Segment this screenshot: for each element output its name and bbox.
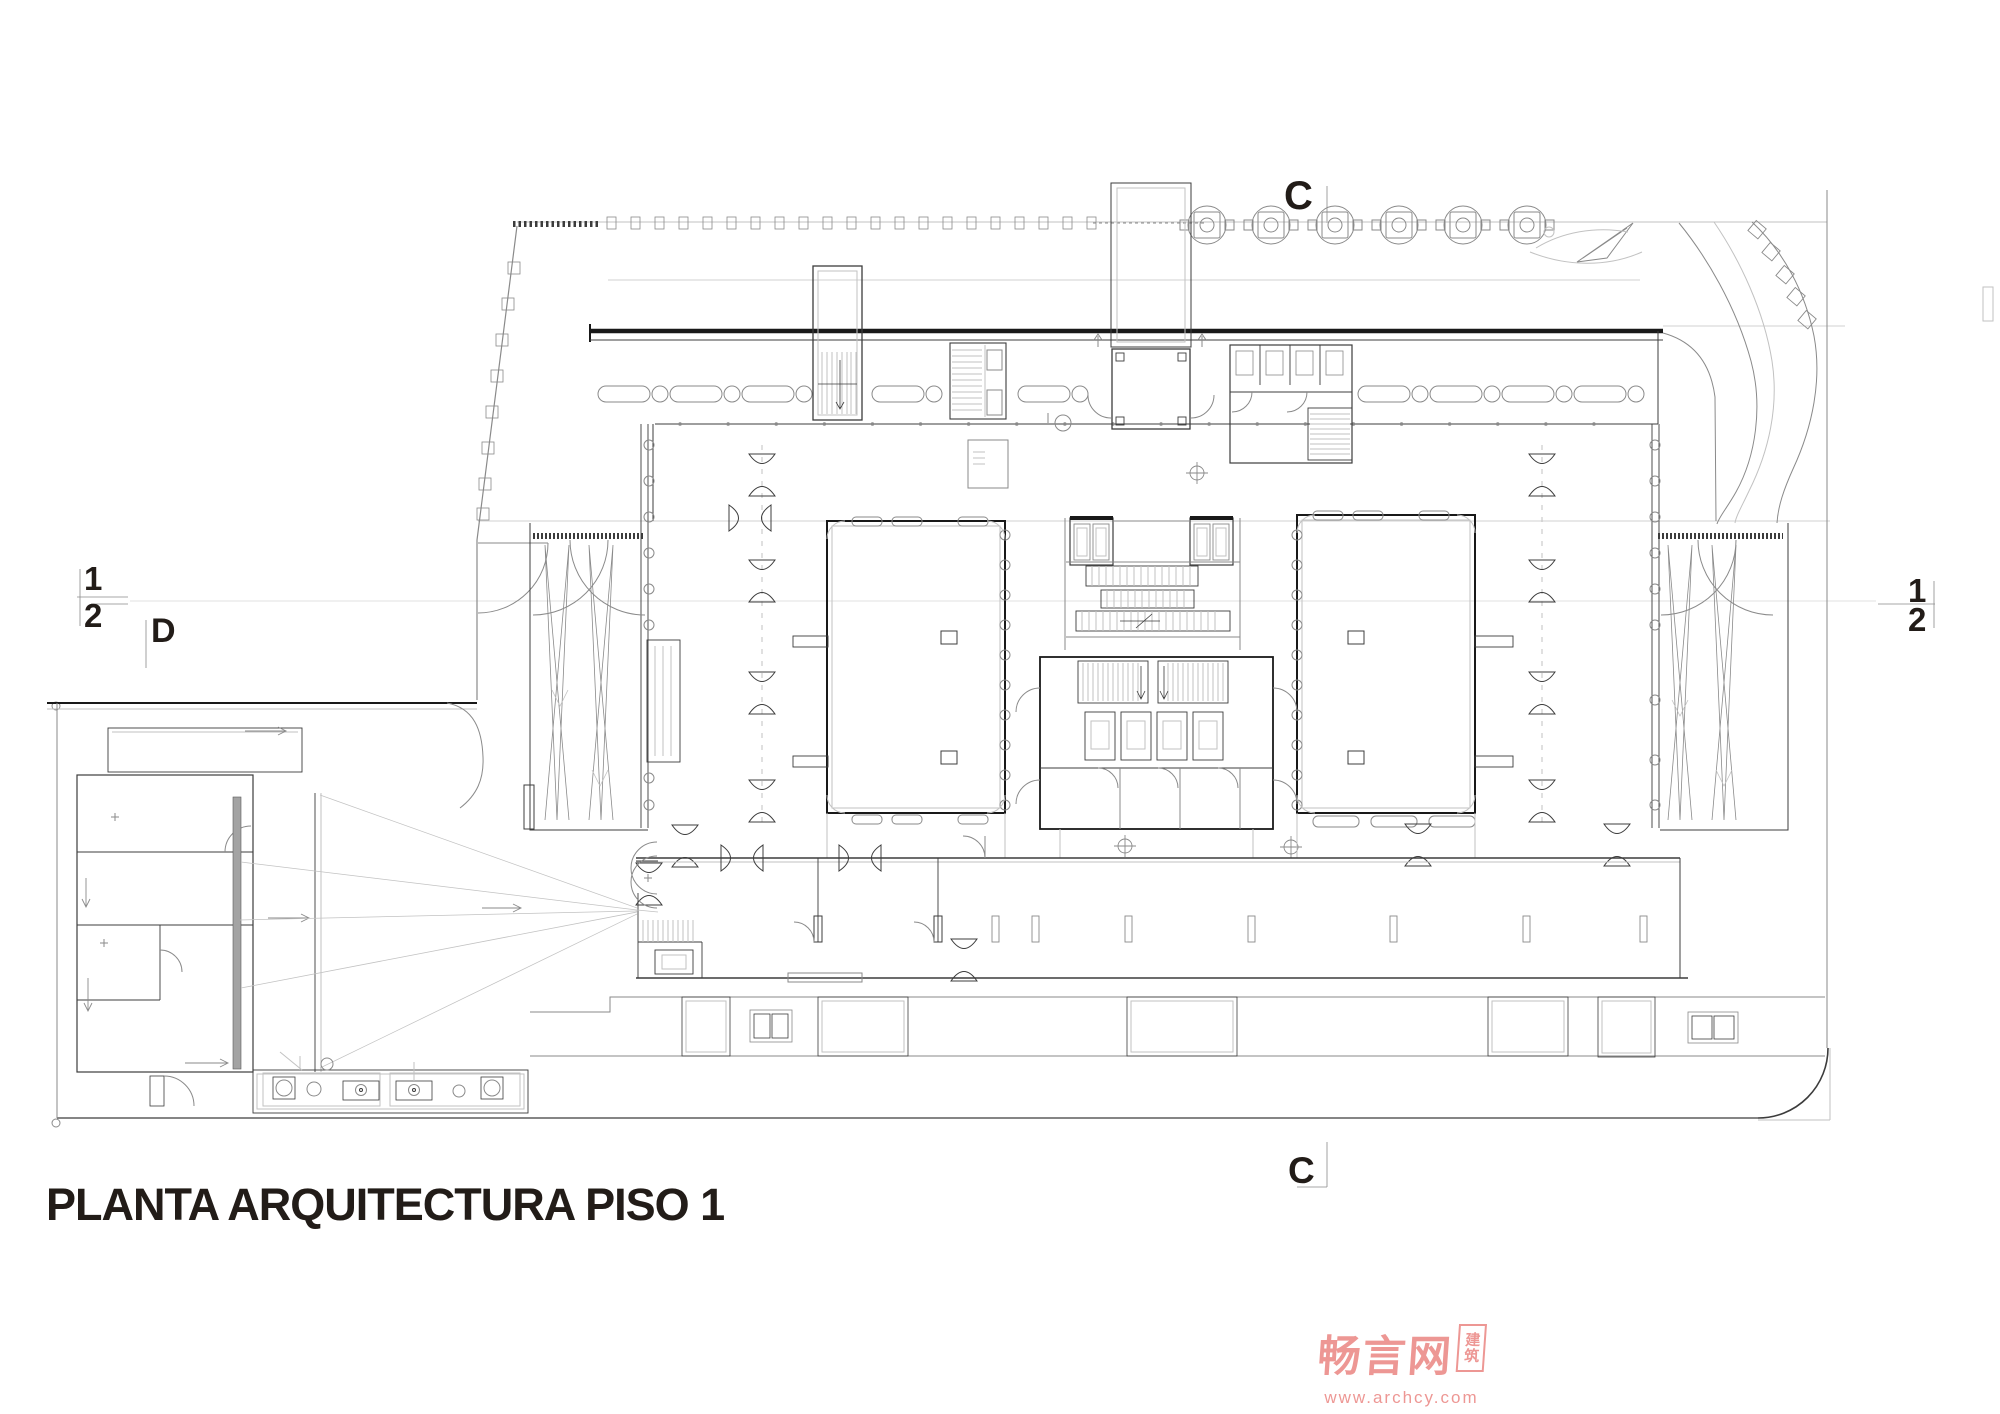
mid-band bbox=[672, 813, 1630, 867]
equipment-row bbox=[253, 1052, 528, 1113]
curtain-bay-right bbox=[1658, 523, 1788, 830]
section-marker-c-top: C bbox=[1284, 176, 1313, 216]
paved-strip bbox=[530, 997, 1825, 1057]
landscape-road bbox=[1530, 221, 1817, 524]
hall-left bbox=[793, 517, 1010, 824]
fence-mullions bbox=[607, 217, 1096, 229]
trees-row bbox=[1180, 206, 1554, 244]
section-marker-2-right: 2 bbox=[1908, 603, 1926, 636]
watermark: 畅言网 建筑 www.archcy.com bbox=[1318, 1322, 1485, 1408]
hall-right bbox=[1292, 511, 1513, 827]
stair-block bbox=[950, 343, 1071, 488]
watermark-badge-icon: 建筑 bbox=[1456, 1324, 1487, 1372]
grid-label-d: D bbox=[151, 614, 176, 648]
south-wing bbox=[631, 836, 1688, 982]
bench-rows bbox=[598, 386, 1644, 402]
section-marker-1-left: 1 bbox=[84, 562, 102, 595]
floor-plan-sheet: PLANTA ARQUITECTURA PISO 1 C C D 1 2 1 2… bbox=[0, 0, 2000, 1414]
section-marker-c-bottom: C bbox=[1288, 1152, 1315, 1189]
section-marker-2-left: 2 bbox=[84, 599, 102, 632]
central-core bbox=[1016, 518, 1297, 858]
paving-inset-squares bbox=[750, 1010, 1738, 1043]
drawing-title: PLANTA ARQUITECTURA PISO 1 bbox=[46, 1182, 724, 1227]
entrance-canopy bbox=[1088, 183, 1214, 484]
curtain-bay-left bbox=[524, 523, 680, 830]
stair-tower bbox=[813, 266, 862, 420]
toilet-block bbox=[1230, 345, 1352, 463]
north-wing bbox=[590, 324, 1663, 521]
flow-arrows bbox=[82, 727, 521, 1067]
watermark-url: www.archcy.com bbox=[1318, 1388, 1485, 1408]
sight-lines bbox=[240, 795, 658, 1068]
watermark-brand: 畅言网 bbox=[1316, 1322, 1455, 1384]
